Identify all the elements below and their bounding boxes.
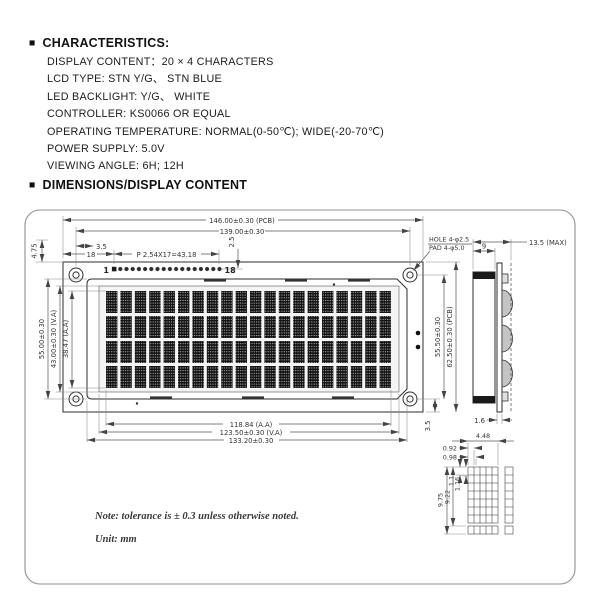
dim-pcb-width: 146.00±0.30 (PCB) xyxy=(209,217,275,225)
dim-cell-height2: 9.22 xyxy=(444,490,452,504)
dim-width-aa: 118.84 (A.A) xyxy=(230,421,273,429)
side-lcd-body xyxy=(473,272,495,403)
dimension-drawing: 146.00±0.30 (PCB) 139.00±0.30 4.75 3.5 1… xyxy=(0,0,600,600)
dim-dot-width: 0.92 xyxy=(443,444,457,452)
dim-dot-pitch-x: 0.98 xyxy=(443,453,457,461)
dim-height-pcb: 62.50±0.30 (PCB) xyxy=(446,306,454,368)
side-view xyxy=(473,263,513,412)
dim-side-body: 9 xyxy=(482,242,486,250)
dim-dot-pitch-y: 1.16 xyxy=(454,477,462,491)
mounting-hole-top-left xyxy=(69,268,83,282)
dim-width-va: 123.50±0.30 (V.A) xyxy=(220,429,283,437)
dim-height-va: 43.00±0.30 (V.A) xyxy=(50,309,58,368)
dim-hole-span: 139.00±0.30 xyxy=(220,228,265,236)
mounting-hole-bottom-right xyxy=(403,392,417,406)
mounting-hole-top-right xyxy=(403,268,417,282)
hole-note-line2: PAD 4-φ5.0 xyxy=(429,244,465,252)
side-top-cap xyxy=(473,272,495,279)
dim-pin-drop: 2.5 xyxy=(228,237,236,248)
pin-first-label: 1 xyxy=(103,266,109,275)
dim-pin-offset: 18 xyxy=(87,251,96,259)
cell-cursor-row xyxy=(468,526,498,534)
dim-hole-offset: 3.5 xyxy=(96,243,107,251)
character-cell-detail xyxy=(468,467,513,534)
dim-height-holes: 55.50±0.30 xyxy=(434,317,442,357)
side-pcb xyxy=(497,263,502,412)
dim-pin-pitch: P 2.54X17=43.18 xyxy=(137,251,197,259)
dim-width-bezel: 133.20±0.30 xyxy=(229,437,274,445)
dim-side-pcb-thickness: 1.6 xyxy=(474,417,485,425)
dim-height-aa: 38.47 (A.A) xyxy=(62,320,70,359)
pin-last-label: 18 xyxy=(225,266,237,275)
cell-main-block xyxy=(468,467,498,523)
pin-1-marker xyxy=(112,267,117,272)
dim-height-bezel: 55.00±0.30 xyxy=(38,319,46,359)
dim-top-margin: 4.75 xyxy=(31,243,39,258)
cell-gap-column xyxy=(505,467,513,523)
pin-row xyxy=(112,267,222,272)
dim-side-max: 13.5 (MAX) xyxy=(529,239,567,247)
note-tolerance: Note: tolerance is ± 0.3 unless otherwis… xyxy=(94,511,299,522)
character-matrix xyxy=(106,291,391,388)
front-view xyxy=(63,262,423,412)
note-unit: Unit: mm xyxy=(95,534,137,545)
dim-cell-width: 4.48 xyxy=(476,432,490,440)
cell-corner-square xyxy=(505,526,513,534)
drawing-notes: Note: tolerance is ± 0.3 unless otherwis… xyxy=(94,511,299,545)
dim-bottom-offset: 3.5 xyxy=(424,421,432,432)
backlight-solder-dots xyxy=(416,331,421,350)
hole-note-line1: HOLE 4-φ2.5 xyxy=(429,236,469,244)
side-bottom-cap xyxy=(473,396,495,403)
